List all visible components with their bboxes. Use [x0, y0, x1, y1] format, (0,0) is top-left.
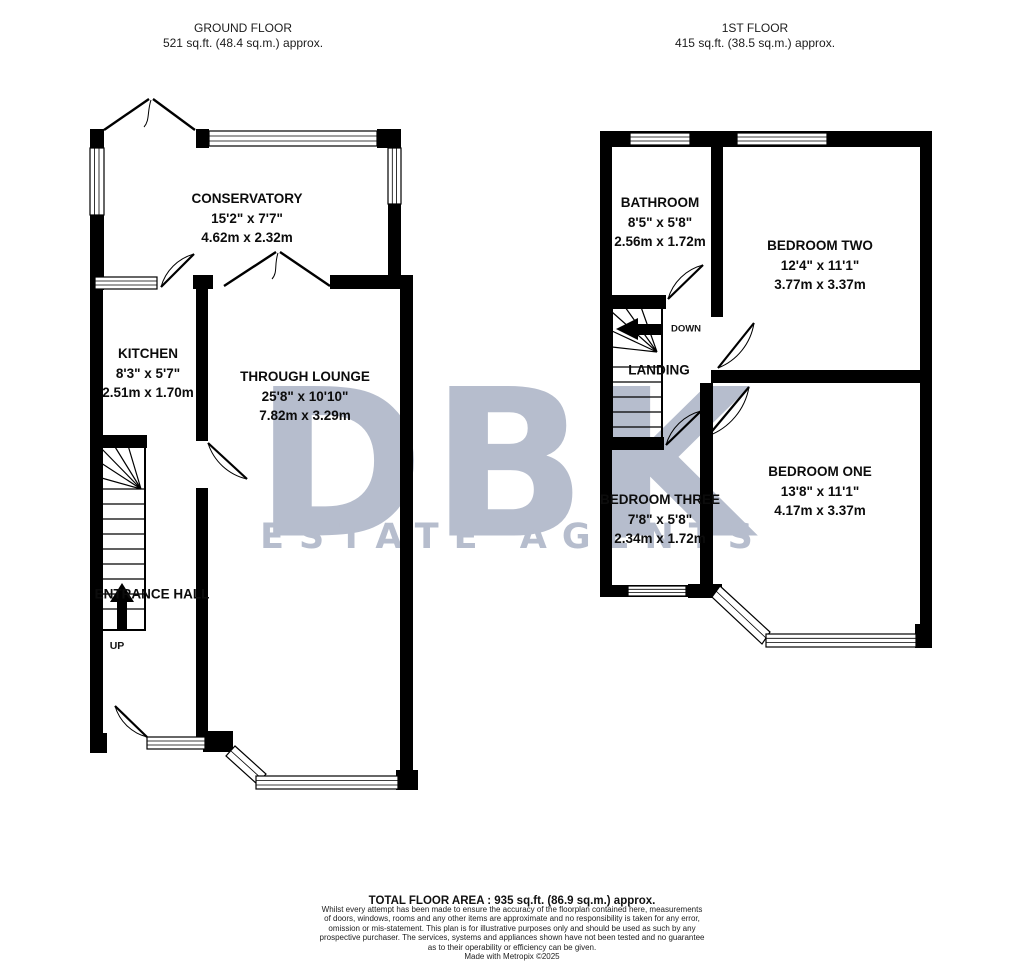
up-arrow-icon	[110, 583, 134, 631]
first-windows	[628, 133, 916, 647]
first-walls	[600, 131, 932, 648]
first-floor-plan	[600, 131, 932, 648]
ground-walls	[90, 129, 418, 790]
ground-floor-plan	[90, 99, 418, 790]
ground-staircase	[98, 442, 145, 631]
ground-windows	[90, 131, 401, 789]
floorplan-canvas	[0, 0, 1024, 960]
ground-doors	[104, 99, 330, 737]
first-staircase	[612, 307, 662, 447]
